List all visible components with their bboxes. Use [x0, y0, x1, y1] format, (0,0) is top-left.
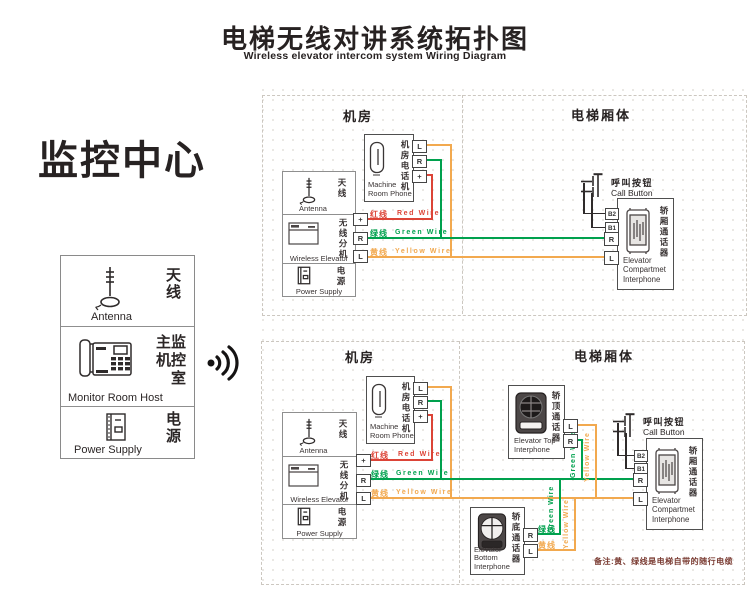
green-wire: [440, 400, 442, 480]
green-wire-label-en: Green Wire: [396, 470, 449, 477]
yellow-wire-label-en: Yellow Wire: [396, 489, 452, 496]
terminal-r: R: [353, 232, 368, 245]
power-supply-icon: [297, 507, 311, 526]
section-elevator-body-top: 电梯厢体: [571, 105, 631, 124]
machine-room-phone-box-bottom: 机房电话机 Machine Room Phone: [366, 376, 415, 444]
terminal-r: R: [604, 232, 619, 246]
compartment-interphone-box-bottom: 轿厢通话器 Elevator Compartmet Interphone: [646, 438, 703, 530]
green-wire: [366, 237, 606, 239]
footnote: 备注:黄、绿线是电梯自带的随行电缆: [594, 556, 733, 567]
power-supply-label-en: Power Supply: [283, 288, 355, 297]
handset-icon: [369, 141, 385, 179]
desk-phone-icon: [77, 337, 135, 383]
power-supply-cell: 电源 Power Supply: [283, 504, 356, 539]
compartment-interphone-label-cn: 轿厢通话器: [659, 206, 669, 259]
red-wire-label-cn: 红线: [371, 450, 389, 461]
panel-top-divider: [462, 95, 463, 314]
yellow-wire-label-cn: 黄线: [370, 247, 388, 258]
green-wire-label-cn: 绿线: [370, 228, 388, 239]
terminal-r: R: [563, 434, 578, 448]
yellow-wire: [425, 144, 452, 146]
monitor-center-box: 天线 Antenna 主监 机控 室 Monitor Room H: [60, 255, 195, 459]
call-button-wire: [591, 193, 593, 228]
terminal-l: L: [412, 140, 427, 153]
antenna-label-en: Antenna: [283, 447, 344, 456]
section-machine-room-top: 机房: [343, 106, 373, 125]
yellow-wire: [450, 144, 452, 258]
wiring-diagram-page: 电梯无线对讲系统拓扑图 Wireless elevator intercom s…: [0, 0, 750, 589]
green-wire: [581, 439, 583, 479]
terminal-b2: B2: [634, 450, 648, 462]
panel-bottom-divider: [459, 341, 460, 583]
terminal-r: R: [633, 473, 648, 487]
elevator-bottom-interphone-label-en: Elevator Bottom Interphone: [474, 546, 524, 572]
equipment-box-top: 天线 Antenna 无线分机 Wireless Elevator 电源 Pow…: [282, 171, 356, 297]
terminal-r: R: [356, 474, 371, 487]
yellow-wire: [366, 256, 606, 258]
green-wire-label-cn: 绿线: [371, 469, 389, 480]
monitor-center-heading: 监控中心: [38, 128, 206, 186]
call-button-icon: [581, 172, 603, 198]
red-wire-label-en: Red Wire: [397, 210, 440, 217]
compartment-interphone-label-en: Elevator Compartmet Interphone: [623, 256, 666, 285]
machine-room-phone-label-en: Machine Room Phone: [368, 181, 412, 198]
red-wire-label-en: Red Wire: [398, 451, 441, 458]
antenna-label-cn: 天线: [337, 178, 347, 199]
antenna-cell: 天线 Antenna: [283, 413, 356, 456]
yellow-wire-label-cn: 黄线: [371, 488, 389, 499]
monitor-host-label-cn: 主监 机控 室: [156, 334, 186, 388]
antenna-icon: [299, 176, 319, 206]
antenna-cell: 天线 Antenna: [283, 172, 355, 214]
terminal-plus: +: [353, 213, 368, 226]
antenna-icon: [95, 264, 125, 312]
antenna-icon: [299, 417, 319, 447]
terminal-l: L: [633, 492, 648, 506]
power-supply-label-cn: 电源: [337, 507, 347, 528]
terminal-l: L: [523, 544, 538, 558]
green-wire: [559, 479, 561, 535]
yellow-wire: [574, 498, 576, 551]
section-elevator-body-bottom: 电梯厢体: [574, 346, 634, 365]
machine-room-phone-label-en: Machine Room Phone: [370, 423, 414, 440]
green-wire-vertical-label: Green Wire: [548, 486, 555, 533]
terminal-plus: +: [413, 410, 428, 423]
power-supply-label-en: Power Supply: [283, 530, 356, 539]
yellow-wire-label-en: Yellow Wire: [395, 248, 451, 255]
page-subtitle: Wireless elevator intercom system Wiring…: [0, 50, 750, 62]
call-button-label-en: Call Button: [643, 427, 685, 437]
terminal-plus: +: [412, 170, 427, 183]
green-wire: [440, 159, 442, 239]
yellow-wire-vertical-label: Yellow Wire: [584, 432, 591, 482]
monitor-antenna-label-en: Antenna: [91, 311, 132, 323]
terminal-l: L: [353, 250, 368, 263]
compartment-speaker-icon: [654, 447, 680, 495]
yellow-wire: [450, 386, 452, 499]
handset-icon: [371, 383, 387, 421]
terminal-l: L: [413, 382, 428, 395]
speaker-icon: [515, 392, 547, 434]
call-button-wire: [591, 227, 606, 229]
section-machine-room-bottom: 机房: [345, 347, 375, 366]
terminal-r: R: [523, 528, 538, 542]
elevator-top-interphone-label-en: Elevator Top Interphone: [514, 437, 556, 454]
machine-room-phone-box-top: 机房电话机 Machine Room Phone: [364, 134, 414, 202]
compartment-interphone-label-en: Elevator Compartmet Interphone: [652, 496, 695, 525]
compartment-interphone-label-cn: 轿厢通话器: [688, 446, 698, 499]
terminal-l: L: [604, 251, 619, 265]
terminal-r: R: [413, 396, 428, 409]
terminal-b2: B2: [605, 208, 619, 220]
monitor-antenna-cell: 天线 Antenna: [61, 256, 194, 326]
monitor-antenna-label-cn: 天线: [162, 267, 183, 301]
antenna-label-en: Antenna: [283, 205, 343, 214]
monitor-power-label-cn: 电源: [162, 411, 183, 445]
antenna-label-cn: 天线: [338, 419, 348, 440]
power-supply-icon: [105, 412, 127, 442]
green-wire-label-en: Green Wire: [395, 229, 448, 236]
yellow-wire: [426, 386, 452, 388]
monitor-host-cell: 主监 机控 室 Monitor Room Host: [61, 326, 194, 407]
wireless-extension-label-en: Wireless Elevator: [283, 255, 355, 264]
wireless-extension-icon: [288, 464, 319, 487]
compartment-speaker-icon: [625, 207, 651, 255]
call-button-icon: [613, 412, 635, 438]
wireless-extension-label-en: Wireless Elevator: [283, 496, 356, 505]
monitor-host-label-en: Monitor Room Host: [68, 392, 163, 404]
yellow-wire: [576, 424, 597, 426]
power-supply-cell: 电源 Power Supply: [283, 263, 355, 297]
power-supply-icon: [297, 266, 311, 285]
wireless-extension-cell: 无线分机 Wireless Elevator: [283, 456, 356, 505]
terminal-l: L: [563, 419, 578, 433]
wireless-signal-icon: [206, 344, 242, 382]
terminal-plus: +: [356, 454, 371, 467]
elevator-bottom-interphone-box: 轿底通话器 Elevator Bottom Interphone: [470, 507, 525, 575]
wireless-extension-cell: 无线分机 Wireless Elevator: [283, 214, 355, 264]
call-button-wire: [583, 213, 606, 215]
yellow-wire: [595, 424, 597, 498]
yellow-wire-vertical-label: Yellow Wire: [563, 499, 570, 549]
monitor-power-cell: 电源 Power Supply: [61, 406, 194, 459]
yellow-wire-label-cn: 黄线: [538, 540, 556, 551]
monitor-power-label-en: Power Supply: [74, 444, 142, 456]
compartment-interphone-box-top: 轿厢通话器 Elevator Compartmet Interphone: [617, 198, 674, 290]
elevator-top-interphone-box: 轿顶通话器 Elevator Top Interphone: [508, 385, 565, 459]
equipment-box-bottom: 天线 Antenna 无线分机 Wireless Elevator 电源 Pow…: [282, 412, 357, 539]
terminal-r: R: [412, 155, 427, 168]
call-button-wire: [625, 433, 627, 469]
power-supply-label-cn: 电源: [336, 266, 346, 287]
wireless-extension-icon: [288, 222, 319, 245]
call-button-label-en: Call Button: [611, 188, 653, 198]
terminal-l: L: [356, 492, 371, 505]
red-wire-label-cn: 红线: [370, 209, 388, 220]
